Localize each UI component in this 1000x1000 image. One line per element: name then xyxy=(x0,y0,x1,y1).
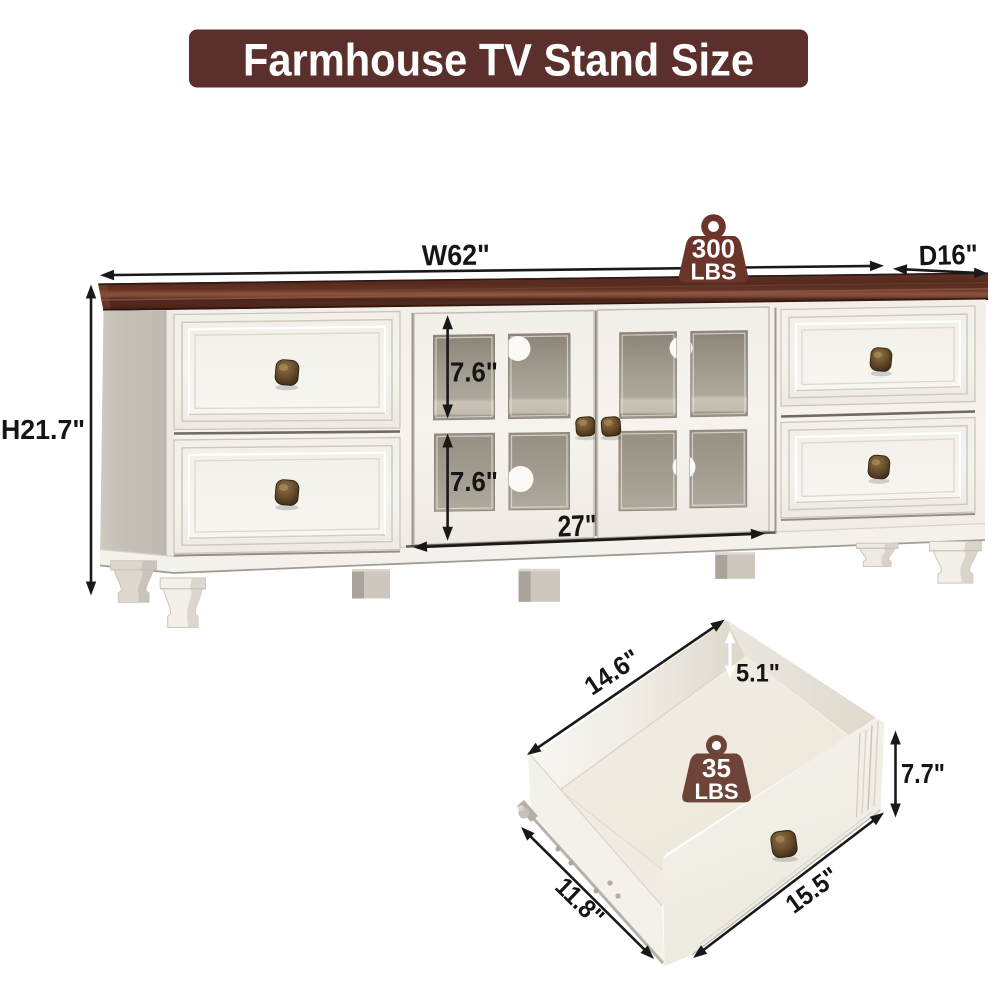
svg-text:D16": D16" xyxy=(918,239,978,272)
svg-text:W62": W62" xyxy=(422,240,490,273)
svg-text:5.1": 5.1" xyxy=(736,660,780,688)
svg-text:27": 27" xyxy=(557,509,597,543)
svg-text:H21.7": H21.7" xyxy=(1,414,85,445)
svg-text:Farmhouse TV Stand Size: Farmhouse TV Stand Size xyxy=(243,35,754,86)
svg-text:LBS: LBS xyxy=(695,779,739,804)
svg-text:7.6": 7.6" xyxy=(450,357,498,388)
svg-text:7.7": 7.7" xyxy=(901,758,945,789)
svg-text:LBS: LBS xyxy=(691,259,737,285)
svg-text:7.6": 7.6" xyxy=(450,466,498,497)
